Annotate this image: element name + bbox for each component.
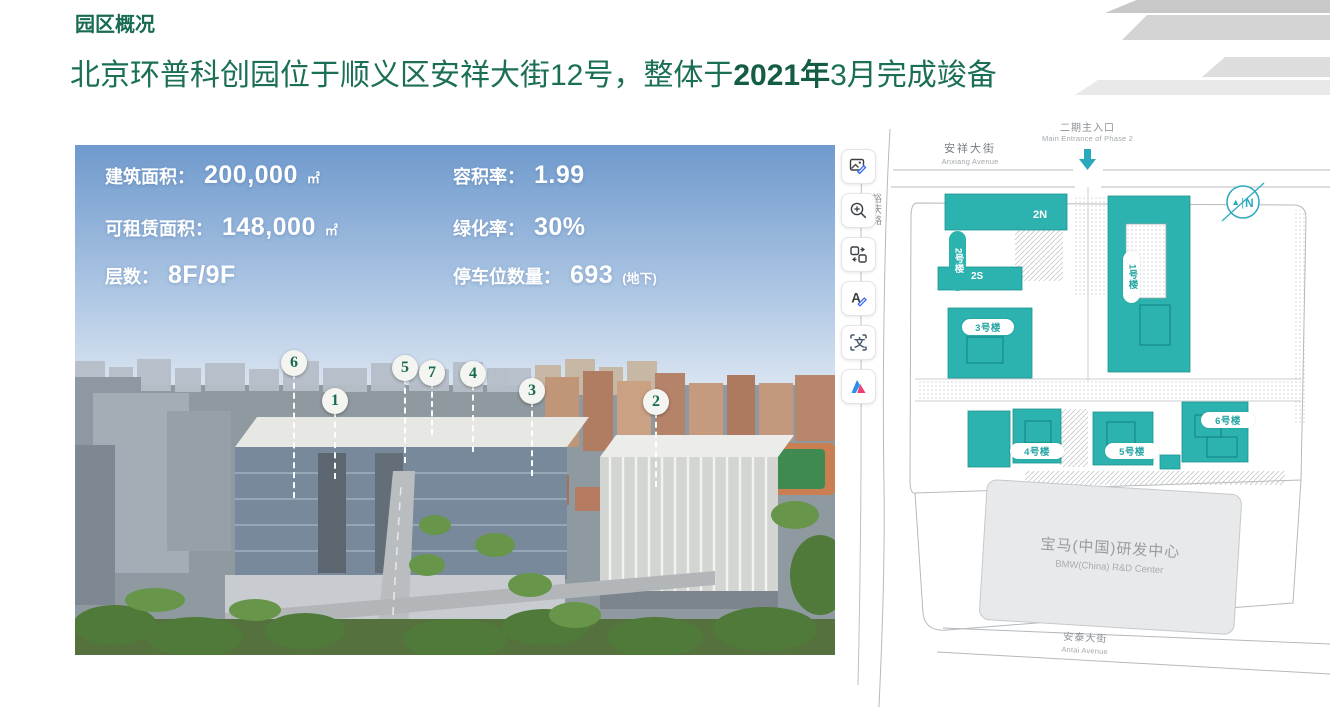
image-edit-icon <box>849 157 868 176</box>
marker-number: 3 <box>519 378 545 404</box>
stat-unit: (地下) <box>622 268 657 287</box>
stat-value: 200,000 <box>204 161 298 190</box>
marker-number: 2 <box>643 389 669 415</box>
north-compass: ▲|N <box>1226 186 1259 219</box>
marker-leader-line <box>293 363 295 498</box>
stat-value: 693 <box>570 261 613 290</box>
decor-stripe <box>1202 57 1330 77</box>
zoom-in-icon <box>849 201 868 220</box>
decor-stripe <box>1122 15 1330 40</box>
translate-select-icon: 文 <box>849 333 868 352</box>
stat-label: 层数： <box>105 263 159 289</box>
svg-text:文: 文 <box>854 336 866 350</box>
title-post: 3月完成竣备 <box>830 59 997 92</box>
marker-number: 5 <box>392 355 418 381</box>
title-pre: 北京环普科创园位于顺义区安祥大街12号，整体于 <box>70 59 733 92</box>
ai-assistant-button[interactable] <box>841 369 876 404</box>
text-edit-icon: A <box>849 289 868 308</box>
stat-value: 1.99 <box>534 161 585 190</box>
image-edit-button[interactable] <box>841 149 876 184</box>
stat-green-ratio: 绿化率： 30% <box>453 213 586 242</box>
marker-number: 4 <box>460 361 486 387</box>
stat-value: 30% <box>534 213 586 242</box>
stat-floors: 层数： 8F/9F <box>105 261 236 290</box>
stat-label: 可租赁面积： <box>105 215 213 241</box>
ai-assistant-logo-icon <box>849 377 868 396</box>
stat-building-area: 建筑面积： 200,000 ㎡ <box>105 161 320 190</box>
marker-number: 6 <box>281 350 307 376</box>
replace-image-button[interactable] <box>841 237 876 272</box>
stat-unit: ㎡ <box>307 168 320 187</box>
slide: 园区概况 北京环普科创园位于顺义区安祥大街12号，整体于2021年3月完成竣备 <box>0 0 1330 711</box>
building-2n-label: 2N <box>1033 209 1047 221</box>
street-anxiang-cn: 安祥大街 <box>925 143 1015 157</box>
building-3-label: 3号楼 <box>962 319 1014 335</box>
north-letter: N <box>1245 196 1254 210</box>
stat-leasable-area: 可租赁面积： 148,000 ㎡ <box>105 213 338 242</box>
north-arrow-glyph: ▲ <box>1231 198 1240 207</box>
section-kicker: 园区概况 <box>75 8 155 37</box>
street-anxiang-en: Anxiang Avenue <box>925 157 1015 166</box>
building-2-label: 2号楼 <box>949 231 966 291</box>
marker-number: 7 <box>419 360 445 386</box>
stat-label: 容积率： <box>453 163 525 189</box>
page-title: 北京环普科创园位于顺义区安祥大街12号，整体于2021年3月完成竣备 <box>70 50 997 94</box>
stat-unit: ㎡ <box>325 220 338 239</box>
marker-number: 1 <box>322 388 348 414</box>
text-edit-button[interactable]: A <box>841 281 876 316</box>
stat-label: 停车位数量： <box>453 263 561 289</box>
building-4-label: 4号楼 <box>1010 443 1064 459</box>
marker-leader-line <box>404 368 406 463</box>
stat-value: 148,000 <box>222 213 316 242</box>
building-2s-label: 2S <box>971 271 983 282</box>
stat-parking: 停车位数量： 693 (地下) <box>453 261 657 290</box>
entrance-label-en: Main Entrance of Phase 2 <box>1010 134 1165 143</box>
decor-stripe <box>1105 0 1330 13</box>
building-1-label: 1号楼 <box>1123 251 1140 303</box>
stat-label: 绿化率： <box>453 215 525 241</box>
compass-divider: | <box>1241 197 1244 209</box>
floating-toolbar: A 文 <box>841 149 876 404</box>
zoom-in-button[interactable] <box>841 193 876 228</box>
title-year: 2021年 <box>733 59 830 92</box>
stat-label: 建筑面积： <box>105 163 195 189</box>
translate-select-button[interactable]: 文 <box>841 325 876 360</box>
decor-stripe <box>1075 80 1330 95</box>
stat-plot-ratio: 容积率： 1.99 <box>453 161 585 190</box>
park-aerial-photo: 建筑面积： 200,000 ㎡ 可租赁面积： 148,000 ㎡ 层数： 8F/… <box>75 145 835 655</box>
stat-value: 8F/9F <box>168 261 236 290</box>
site-plan-map: 二期主入口 Main Entrance of Phase 2 安祥大街 Anxi… <box>855 125 1330 711</box>
replace-icon <box>849 245 868 264</box>
building-5-label: 5号楼 <box>1105 443 1159 459</box>
building-6-label: 6号楼 <box>1201 412 1255 428</box>
